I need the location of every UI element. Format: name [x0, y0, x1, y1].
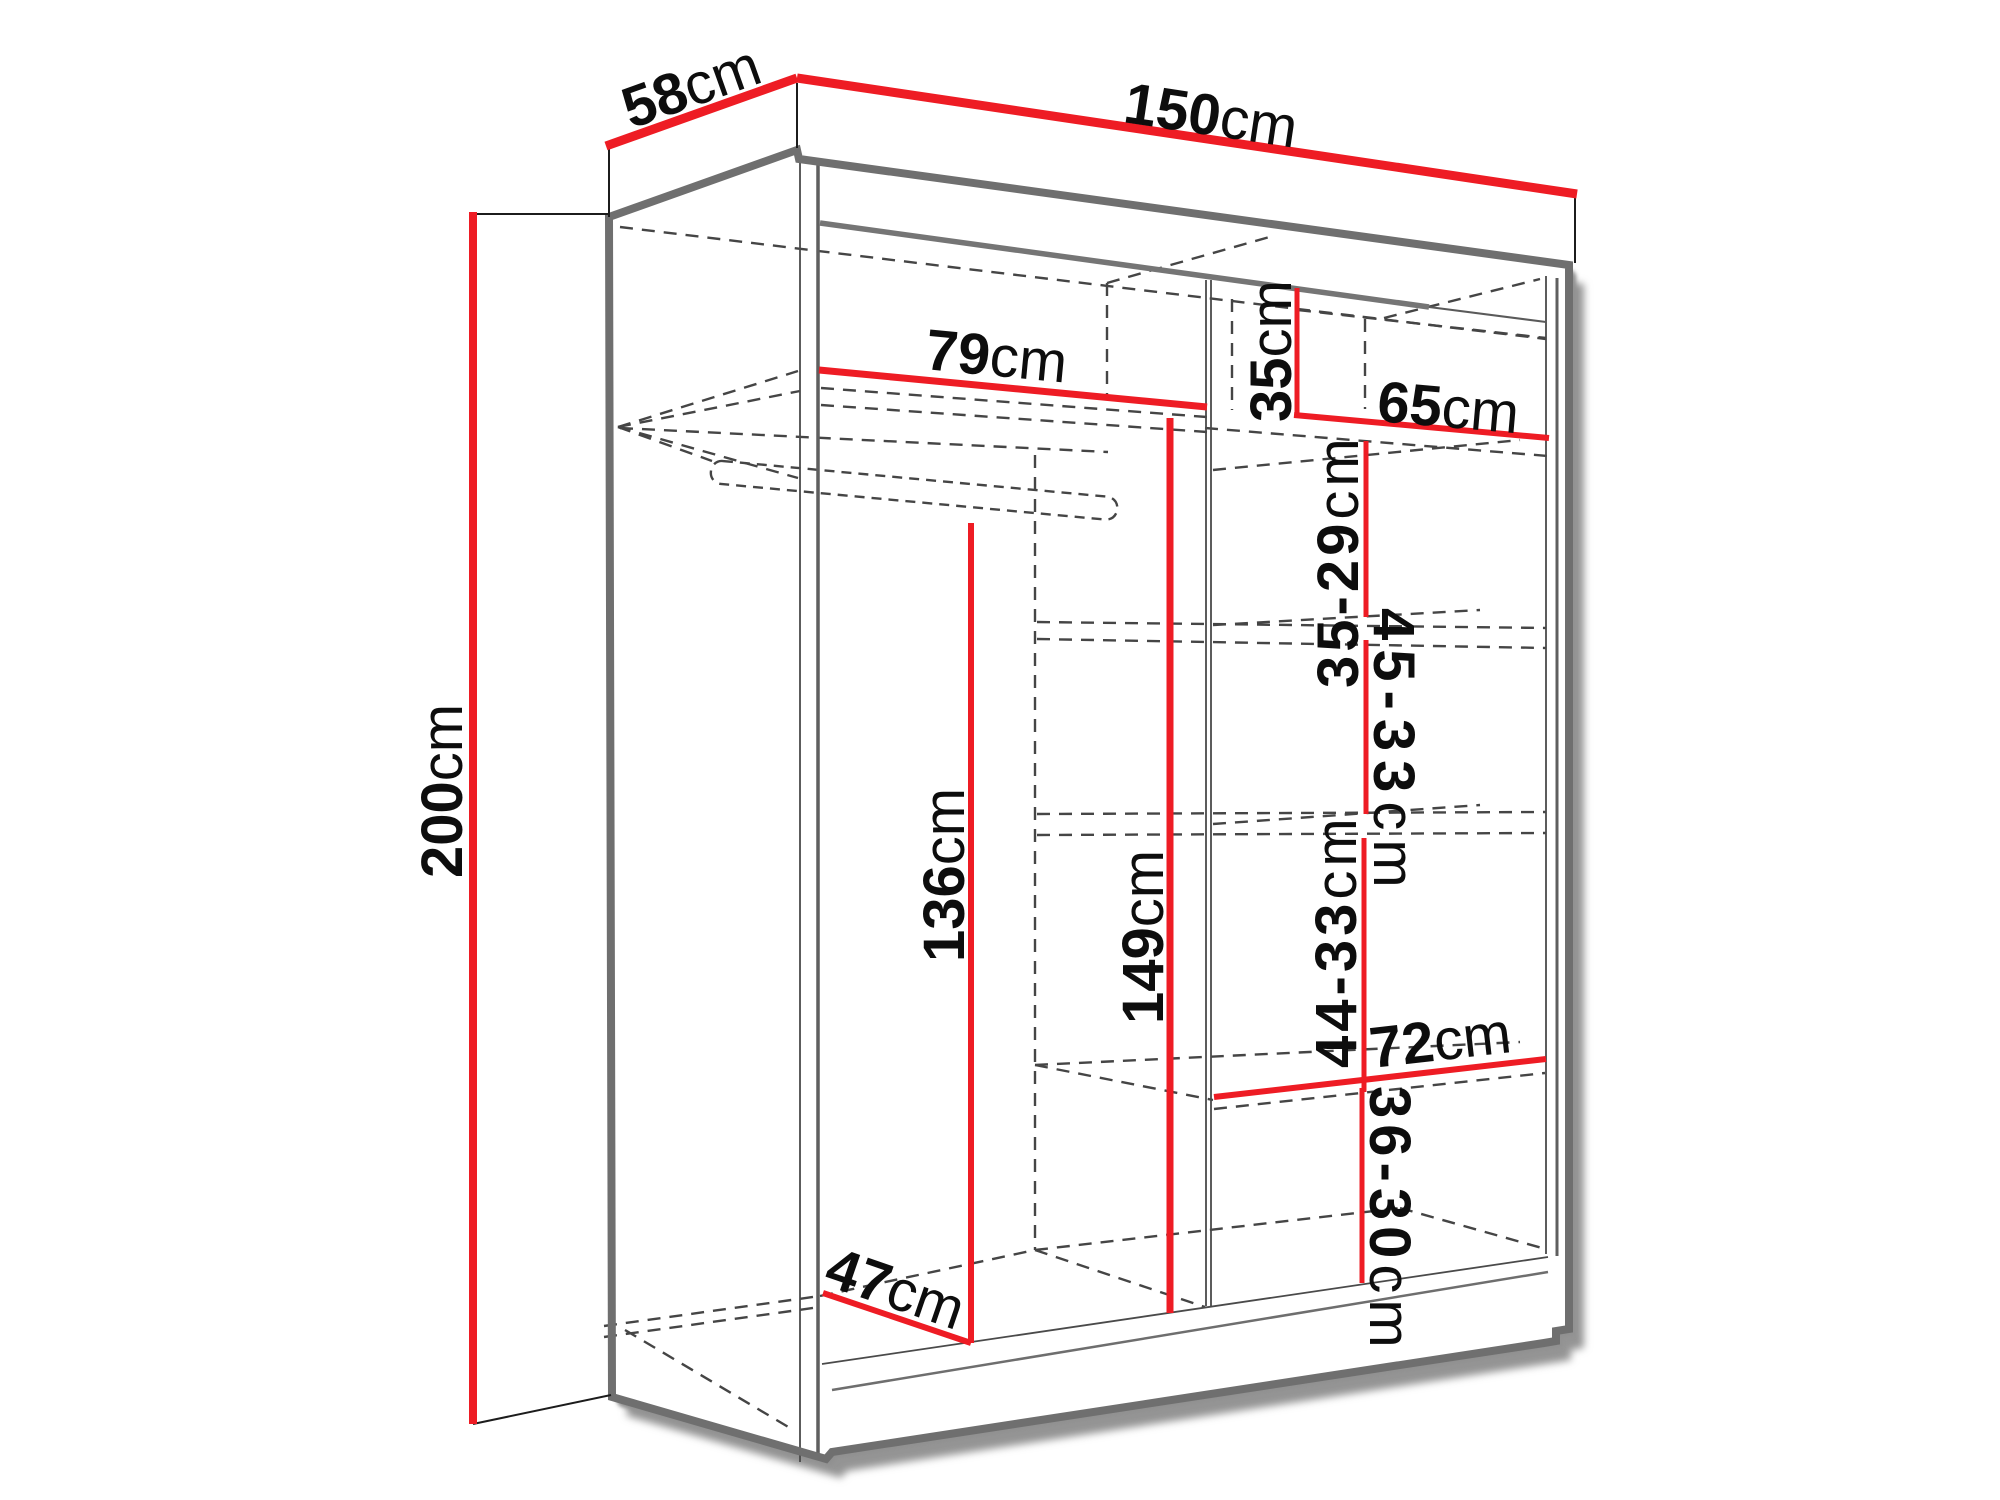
- svg-text:36-30cm: 36-30cm: [1357, 1086, 1422, 1354]
- svg-text:79cm: 79cm: [923, 317, 1070, 395]
- svg-text:149cm: 149cm: [1111, 850, 1176, 1024]
- svg-text:44-33cm: 44-33cm: [1304, 814, 1369, 1068]
- svg-text:35cm: 35cm: [1239, 280, 1304, 422]
- svg-text:45-33cm: 45-33cm: [1361, 608, 1426, 897]
- svg-text:65cm: 65cm: [1375, 369, 1522, 446]
- svg-text:136cm: 136cm: [912, 788, 977, 962]
- svg-text:200cm: 200cm: [410, 704, 475, 878]
